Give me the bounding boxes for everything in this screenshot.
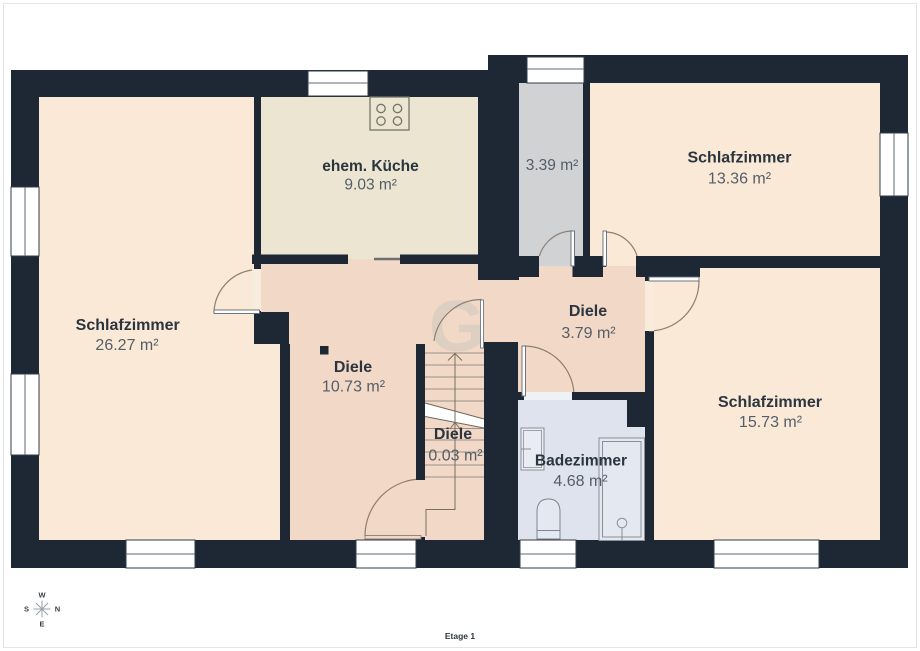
svg-text:ehem. Küche: ehem. Küche bbox=[322, 158, 419, 175]
svg-text:Diele: Diele bbox=[569, 303, 607, 320]
svg-text:4.68 m²: 4.68 m² bbox=[553, 473, 608, 490]
svg-text:Schlafzimmer: Schlafzimmer bbox=[718, 394, 822, 411]
svg-text:3.79 m²: 3.79 m² bbox=[561, 325, 616, 342]
svg-text:Diele: Diele bbox=[334, 359, 372, 376]
svg-text:Schlafzimmer: Schlafzimmer bbox=[687, 150, 791, 167]
svg-text:S: S bbox=[24, 605, 29, 614]
svg-text:Badezimmer: Badezimmer bbox=[535, 453, 627, 470]
svg-text:9.03 m²: 9.03 m² bbox=[344, 177, 397, 194]
svg-text:W: W bbox=[38, 591, 46, 600]
svg-text:13.36 m²: 13.36 m² bbox=[708, 171, 772, 188]
svg-text:N: N bbox=[55, 605, 60, 614]
svg-text:26.27 m²: 26.27 m² bbox=[95, 337, 159, 354]
svg-text:Diele: Diele bbox=[434, 426, 472, 443]
svg-text:0.03 m²: 0.03 m² bbox=[428, 448, 483, 465]
svg-text:E: E bbox=[39, 620, 44, 629]
svg-text:15.73 m²: 15.73 m² bbox=[739, 414, 803, 431]
svg-text:Etage 1: Etage 1 bbox=[445, 631, 476, 641]
svg-text:3.39 m²: 3.39 m² bbox=[526, 157, 579, 174]
svg-text:10.73 m²: 10.73 m² bbox=[322, 379, 386, 396]
svg-text:Schlafzimmer: Schlafzimmer bbox=[76, 317, 180, 334]
